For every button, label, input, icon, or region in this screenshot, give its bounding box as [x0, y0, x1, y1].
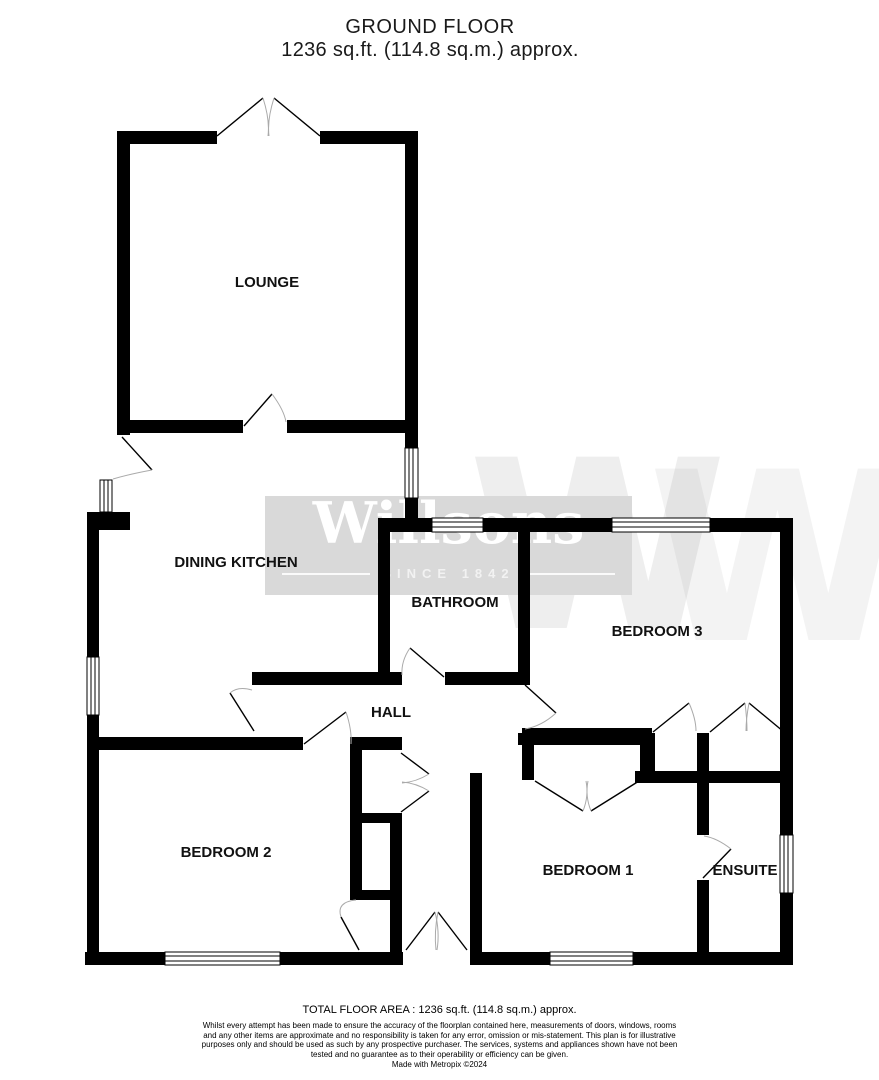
- room-label-lounge: LOUNGE: [235, 274, 299, 291]
- disclaimer-text: Whilst every attempt has been made to en…: [201, 1021, 679, 1059]
- window: [100, 480, 112, 512]
- windows: [87, 448, 793, 965]
- footer: TOTAL FLOOR AREA : 1236 sq.ft. (114.8 sq…: [0, 1004, 879, 1070]
- room-label-bedroom2: BEDROOM 2: [181, 844, 272, 861]
- window: [612, 518, 710, 532]
- floorplan-svg: LOUNGE DINING KITCHEN BATHROOM BEDROOM 3…: [0, 0, 879, 1080]
- room-label-hall: HALL: [371, 704, 411, 721]
- window: [432, 518, 483, 532]
- window: [87, 657, 99, 715]
- room-label-dining-kitchen: DINING KITCHEN: [174, 554, 297, 571]
- room-label-ensuite: ENSUITE: [712, 862, 777, 879]
- window: [780, 835, 793, 893]
- floorplan-page: GROUND FLOOR 1236 sq.ft. (114.8 sq.m.) a…: [0, 0, 879, 1080]
- metropix-credit: Made with Metropix ©2024: [0, 1060, 879, 1070]
- room-label-bedroom3: BEDROOM 3: [612, 623, 703, 640]
- room-label-bathroom: BATHROOM: [411, 594, 498, 611]
- window: [550, 952, 633, 965]
- window: [165, 952, 280, 965]
- room-label-bedroom1: BEDROOM 1: [543, 862, 634, 879]
- window: [405, 448, 418, 498]
- total-floor-area: TOTAL FLOOR AREA : 1236 sq.ft. (114.8 sq…: [0, 1004, 879, 1016]
- walls: [85, 131, 793, 965]
